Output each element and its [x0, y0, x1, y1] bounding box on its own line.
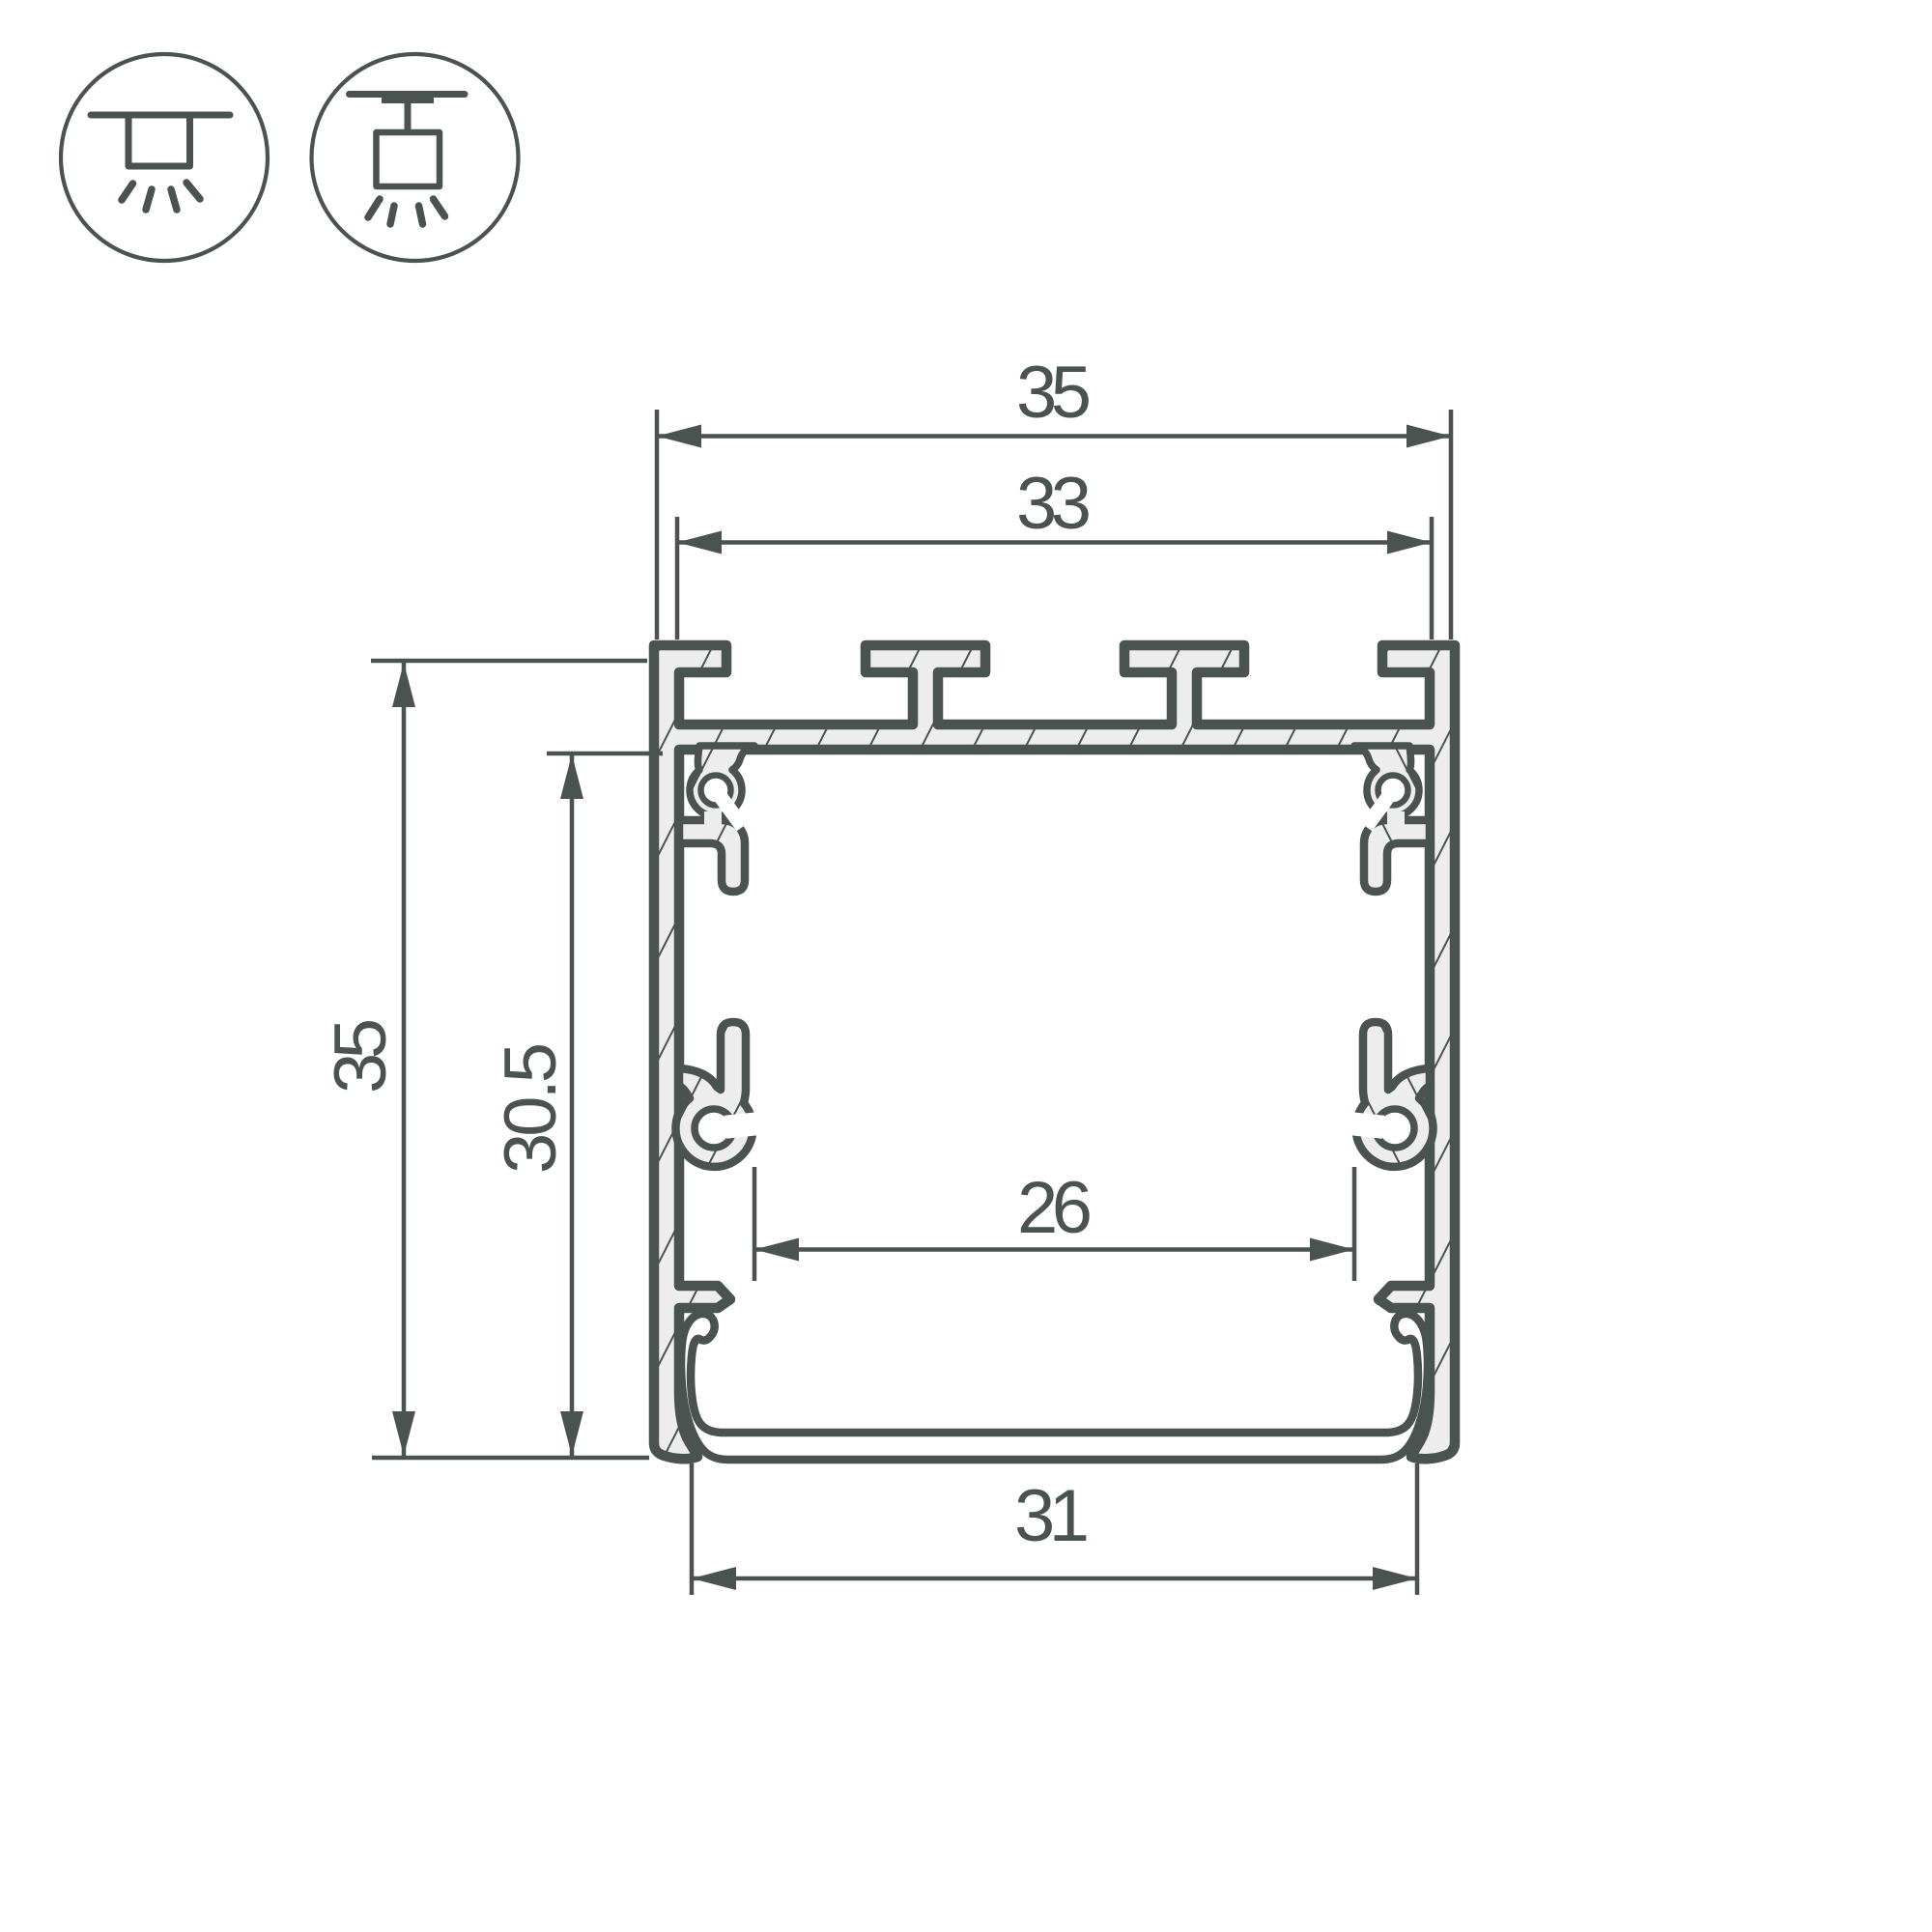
svg-text:31: 31 [1014, 1475, 1090, 1557]
svg-text:35: 35 [1016, 352, 1092, 434]
svg-text:30.5: 30.5 [490, 1042, 572, 1174]
svg-text:33: 33 [1016, 463, 1092, 545]
svg-text:26: 26 [1017, 1167, 1093, 1249]
svg-text:35: 35 [320, 1018, 402, 1094]
